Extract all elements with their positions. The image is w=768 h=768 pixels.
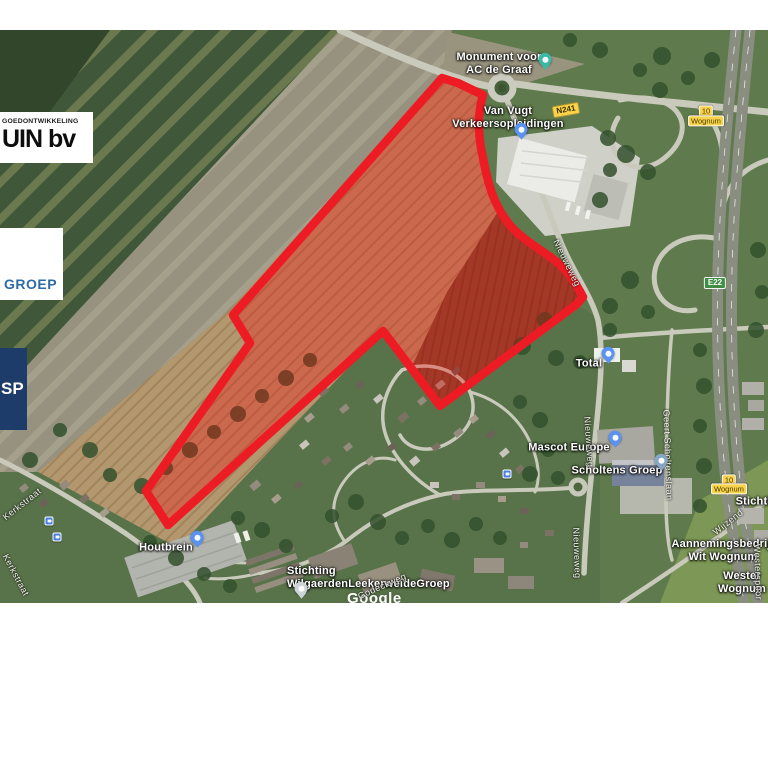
logo-vastgoedontwikkeling: GOEDONTWIKKELING UIN bv bbox=[0, 112, 93, 163]
pin-dot bbox=[542, 56, 548, 62]
road-badge-exit-wognum-north: Wognum bbox=[688, 115, 724, 126]
bus-stop-icon-1[interactable] bbox=[45, 517, 54, 526]
bus-stop-icon-3[interactable] bbox=[503, 470, 512, 479]
place-pin-icon-total[interactable] bbox=[602, 347, 615, 360]
logo-sp: SP bbox=[0, 348, 27, 430]
map-terrain bbox=[0, 30, 768, 603]
poi-label-houtbrein[interactable]: Houtbrein bbox=[139, 541, 193, 554]
place-pin-icon-scholtens-groep[interactable] bbox=[655, 454, 668, 467]
street-label-westerspoor: Westerspoor bbox=[752, 544, 764, 601]
place-pin-icon-wilgaerden[interactable] bbox=[295, 582, 308, 595]
place-pin-icon-houtbrein[interactable] bbox=[191, 531, 204, 544]
place-pin-icon-mascot-europe[interactable] bbox=[609, 431, 622, 444]
poi-label-stichting-right[interactable]: Stichting bbox=[736, 495, 768, 508]
logo-sp-text: SP bbox=[1, 379, 24, 399]
logo-vastgoed-tagline: GOEDONTWIKKELING bbox=[2, 118, 91, 125]
pin-dot bbox=[605, 350, 611, 356]
poi-label-van-vugt[interactable]: Van Vugt Verkeersopleidingen bbox=[452, 105, 563, 131]
road-badge-e22: E22 bbox=[704, 277, 726, 289]
logo-groep: GROEP bbox=[0, 228, 63, 300]
road-badge-exit-wognum-south: Wognum bbox=[711, 483, 747, 494]
bottom-margin bbox=[0, 603, 768, 768]
place-pin-icon-monument[interactable] bbox=[539, 53, 552, 66]
pin-dot bbox=[612, 434, 618, 440]
pin-dot bbox=[658, 457, 664, 463]
satellite-map[interactable]: Google Monument voor AC de GraafVan Vugt… bbox=[0, 30, 768, 603]
pin-dot bbox=[194, 534, 200, 540]
poi-label-mascot-europe[interactable]: Mascot Europe bbox=[528, 441, 609, 454]
pin-dot bbox=[518, 126, 524, 132]
top-margin bbox=[0, 0, 768, 30]
street-label-nieuweweg-south: Nieuweweg bbox=[571, 527, 583, 578]
pin-dot bbox=[298, 585, 304, 591]
slide: Google Monument voor AC de GraafVan Vugt… bbox=[0, 0, 768, 768]
logo-vastgoed-name: UIN bv bbox=[2, 127, 91, 152]
place-pin-icon-van-vugt[interactable] bbox=[515, 123, 528, 136]
bus-stop-icon-2[interactable] bbox=[53, 533, 62, 542]
poi-label-total[interactable]: Total bbox=[576, 357, 602, 370]
poi-label-monument[interactable]: Monument voor AC de Graaf bbox=[456, 51, 541, 77]
logo-groep-text: GROEP bbox=[4, 276, 57, 292]
